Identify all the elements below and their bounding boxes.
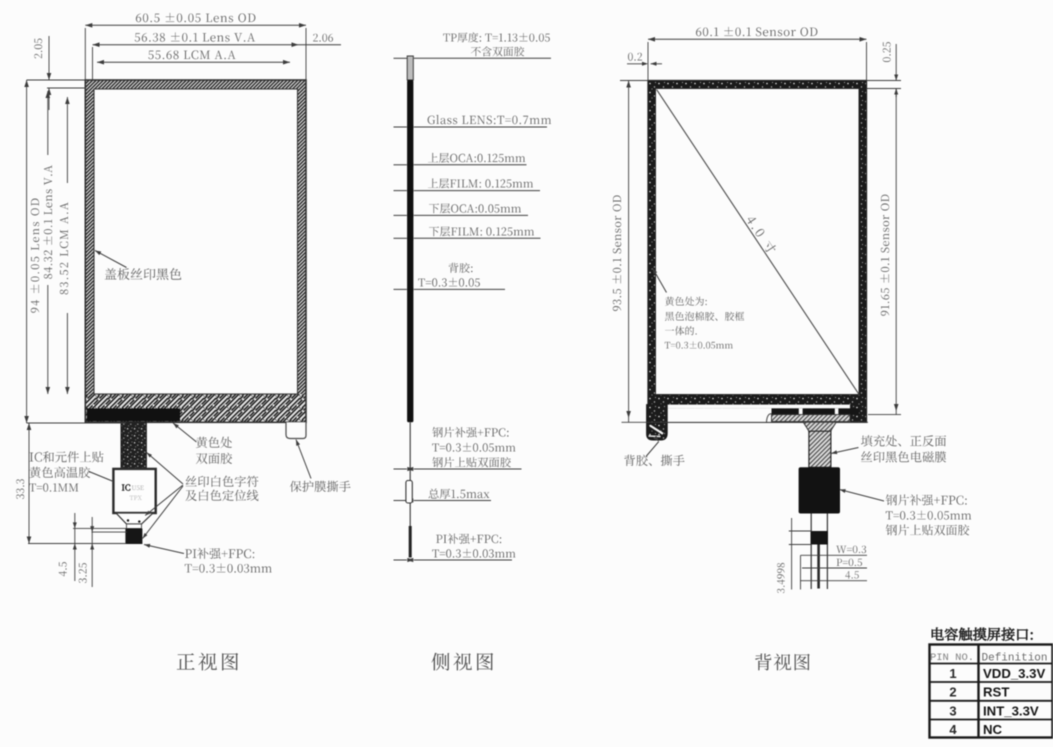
svg-text:3: 3 xyxy=(949,703,956,718)
svg-text:INT_3.3V: INT_3.3V xyxy=(983,703,1039,718)
svg-text:PIN NO.: PIN NO. xyxy=(930,652,974,664)
svg-text:2: 2 xyxy=(949,685,956,700)
svg-text:1: 1 xyxy=(949,666,956,681)
svg-text:NC: NC xyxy=(983,722,1003,737)
svg-text:VDD_3.3V: VDD_3.3V xyxy=(983,666,1046,681)
svg-text:RST: RST xyxy=(983,685,1009,700)
svg-text:Definition: Definition xyxy=(982,653,1048,665)
svg-text:4: 4 xyxy=(949,722,957,737)
